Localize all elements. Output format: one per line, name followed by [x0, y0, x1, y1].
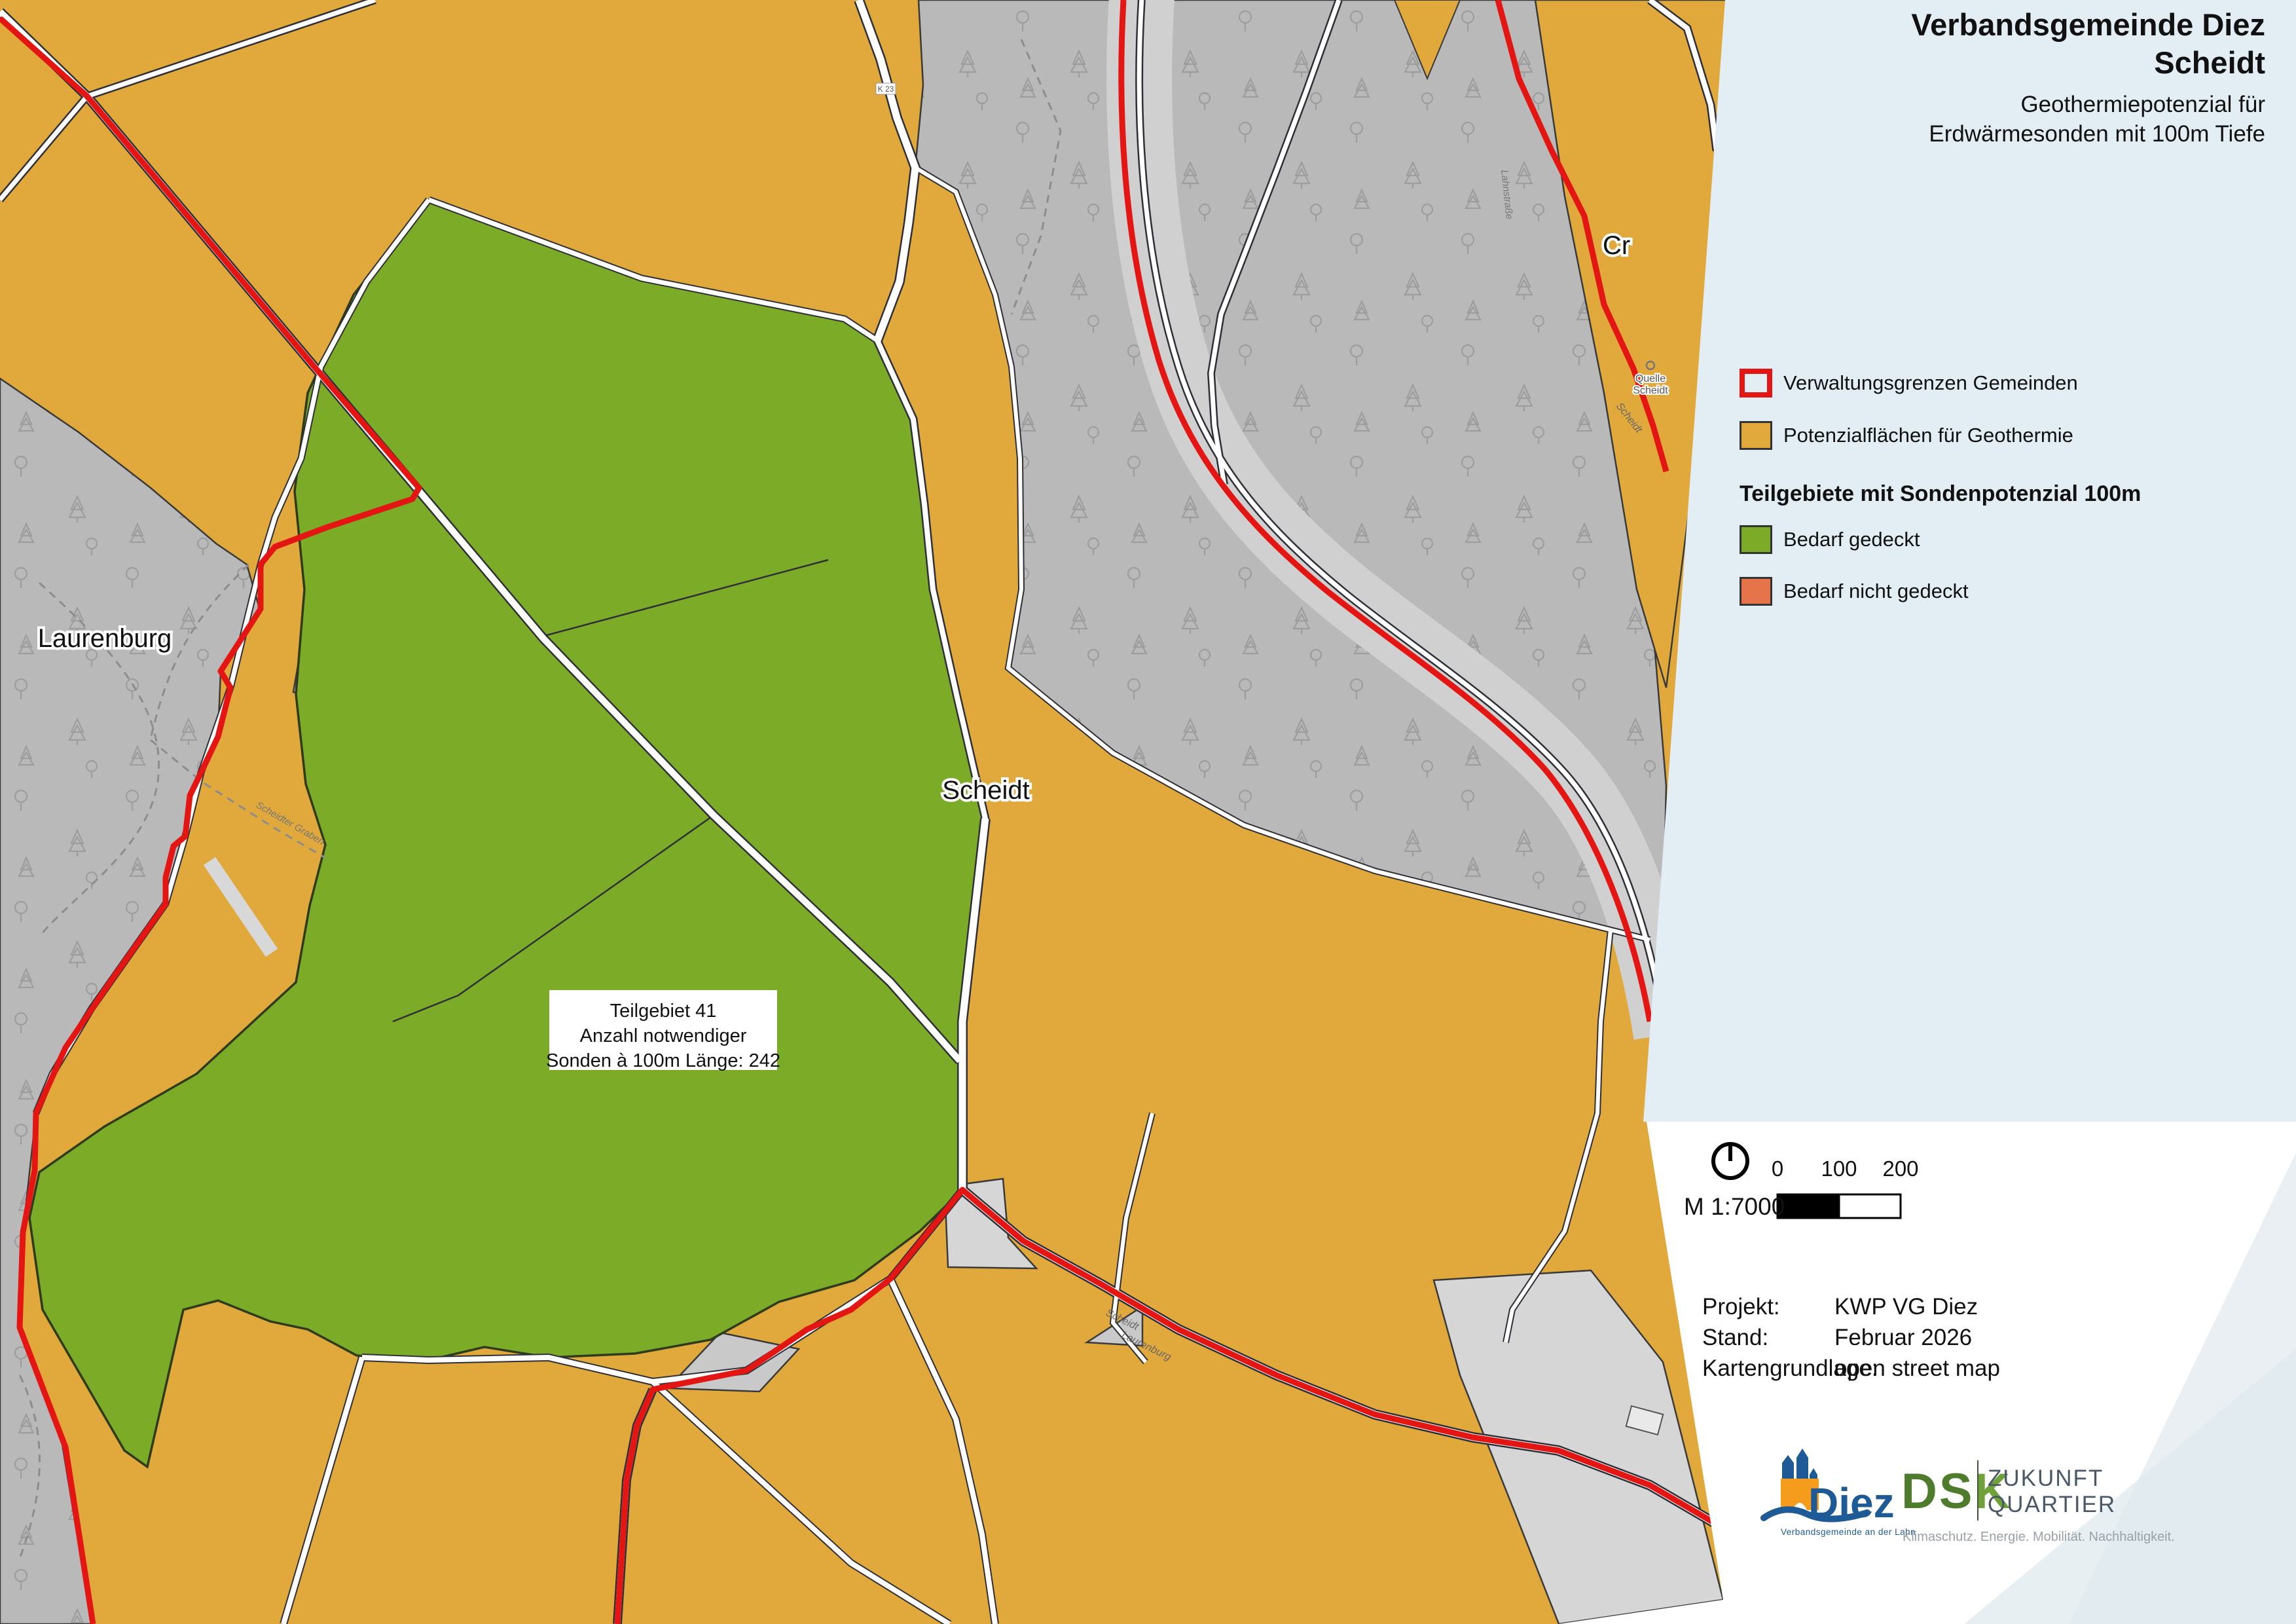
scale-bar [1777, 1194, 1901, 1218]
legend-item-boundaries: Verwaltungsgrenzen Gemeinden [1740, 369, 2078, 397]
legend-swatch-covered [1740, 525, 1772, 554]
diez-logo-subline: Verbandsgemeinde an der Lahn [1781, 1527, 1916, 1537]
legend-label: Bedarf nicht gedeckt [1783, 580, 1969, 603]
dsk-logo-divider [1977, 1460, 1978, 1521]
legend-swatch-potential [1740, 421, 1772, 450]
dsk-claim-line2: QUARTIER [1988, 1492, 2116, 1518]
page-title-line1: Verbandsgemeinde Diez [1480, 7, 2265, 43]
annotation-line1: Teilgebiet 41 [610, 1001, 717, 1022]
scale-tick-100: 100 [1813, 1156, 1865, 1181]
place-label-scheidt: Scheidt [942, 776, 1029, 805]
legend-label: Bedarf gedeckt [1783, 528, 1920, 551]
page-subtitle-line1: Geothermiepotenzial für [1480, 92, 2265, 118]
map-scale-text: M 1:7000 [1684, 1193, 1785, 1221]
project-label: Kartengrundlage: [1702, 1353, 1834, 1384]
title-panel-background [1643, 0, 2296, 1122]
diez-logo-wordmark: Diez [1808, 1479, 1895, 1527]
scale-tick-0: 0 [1751, 1156, 1804, 1181]
project-label: Projekt: [1702, 1291, 1834, 1322]
road-ref-k23: K 23 [878, 84, 894, 94]
legend-label: Potenzialflächen für Geothermie [1783, 424, 2073, 447]
legend-label: Verwaltungsgrenzen Gemeinden [1783, 371, 2078, 395]
project-value: open street map [1834, 1353, 2000, 1384]
project-label: Stand: [1702, 1322, 1834, 1353]
page-title-line2: Scheidt [1480, 45, 2265, 81]
legend-swatch-not-covered [1740, 577, 1772, 606]
legend-swatch-boundary [1740, 369, 1772, 397]
dsk-logo-tagline: Klimaschutz. Energie. Mobilität. Nachhal… [1903, 1530, 2175, 1545]
dsk-logo-claim: ZUKUNFT QUARTIER [1988, 1466, 2116, 1518]
legend-item-covered: Bedarf gedeckt [1740, 525, 1920, 554]
project-value: KWP VG Diez [1834, 1291, 2000, 1322]
annotation-box: Teilgebiet 41 Anzahl notwendiger Sonden … [546, 990, 780, 1071]
legend-item-not-covered: Bedarf nicht gedeckt [1740, 577, 1969, 606]
dsk-claim-line1: ZUKUNFT [1988, 1466, 2116, 1492]
annotation-line2: Anzahl notwendiger [580, 1025, 747, 1046]
spring-label-2: Scheidt [1633, 385, 1668, 396]
place-label-cramberg-clipped: Cr [1603, 231, 1630, 260]
legend-section-header: Teilgebiete mit Sondenpotenzial 100m [1740, 481, 2141, 507]
dsk-ds: DS [1901, 1464, 1975, 1519]
annotation-line3: Sonden à 100m Länge: 242 [546, 1050, 780, 1071]
page-subtitle-line2: Erdwärmesonden mit 100m Tiefe [1480, 121, 2265, 147]
project-info: Projekt: KWP VG Diez Stand: Februar 2026… [1702, 1291, 2000, 1384]
page: Laurenburg Scheidt Cr Quelle Scheidt Sch… [0, 0, 2296, 1624]
place-label-laurenburg: Laurenburg [38, 624, 172, 653]
project-value: Februar 2026 [1834, 1322, 2000, 1353]
scale-tick-200: 200 [1874, 1156, 1927, 1181]
spring-label-1: Quelle [1635, 373, 1666, 384]
legend-item-potential: Potenzialflächen für Geothermie [1740, 421, 2073, 450]
